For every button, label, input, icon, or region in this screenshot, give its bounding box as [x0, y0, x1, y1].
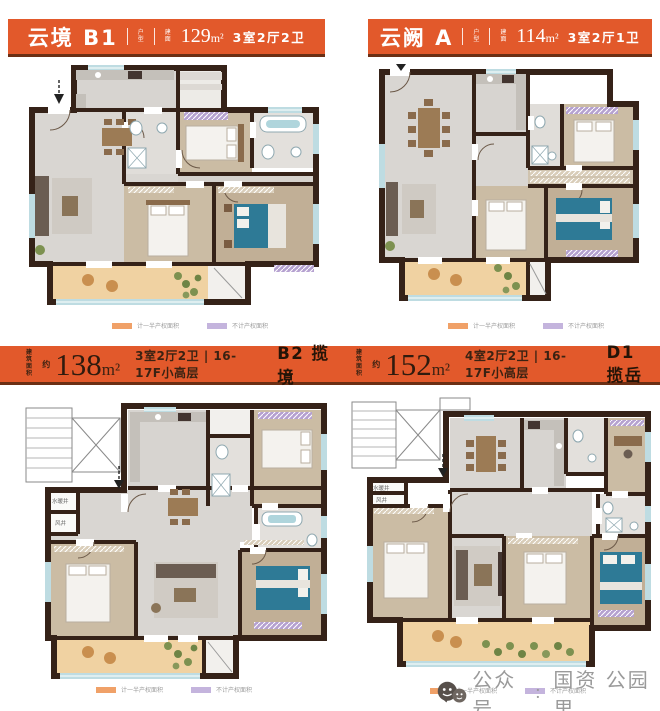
- unit-type-label: 户型: [137, 30, 145, 44]
- unit-header-b1: 云境 B1 户型 建面 129m² 3室2厅2卫: [8, 19, 325, 57]
- legend-label-none: 不计产权面积: [216, 685, 252, 694]
- model-name: B2 揽境: [277, 340, 330, 388]
- area-prefix: 建筑面积: [26, 350, 37, 378]
- floorplan-a: [378, 64, 642, 312]
- floorplan-b2: 水暖井 风井: [18, 394, 332, 684]
- legend-swatch-orange: [96, 687, 116, 693]
- channel-label: 公众号: [472, 664, 529, 711]
- svg-text:水暖井: 水暖井: [52, 497, 69, 505]
- unit-title: 云阙 A: [380, 22, 454, 52]
- floorplan-poster: 云境 B1 户型 建面 129m² 3室2厅2卫 云阙 A 户型 建面 114m…: [0, 0, 660, 711]
- approx-label: 约: [372, 359, 380, 370]
- area-value: 152m²: [385, 349, 450, 380]
- legend-b1: 计一半产权面积 不计产权面积: [112, 321, 268, 330]
- rooms-label: 3室2厅2卫: [233, 27, 306, 46]
- unit-header-a: 云阙 A 户型 建面 114m² 3室2厅1卫: [368, 19, 652, 57]
- unit-band: 建筑面积 约 138m² 3室2厅2卫 | 16-17F小高层 B2 揽境 建筑…: [0, 346, 660, 385]
- footer: 计一半产权面积 不计产权面积 公众号 ： 国资 公园里: [390, 662, 656, 706]
- chat-faces-icon: [436, 678, 467, 708]
- wechat-footer: 公众号 ： 国资 公园里: [436, 664, 656, 711]
- legend-label-half: 计一半产权面积: [121, 685, 163, 694]
- stair-core: [26, 408, 120, 482]
- legend-swatch-orange: [448, 323, 468, 329]
- unit-type-label: 户型: [472, 30, 480, 44]
- legend-swatch-purple: [191, 687, 211, 693]
- channel-separator: ：: [534, 683, 548, 703]
- area-prefix: 建面: [499, 30, 507, 44]
- svg-text:水暖井: 水暖井: [373, 484, 390, 492]
- legend-label-half: 计一半产权面积: [473, 321, 515, 330]
- floorplan-d1: 水暖井 风井: [346, 396, 654, 672]
- area-prefix: 建面: [164, 30, 172, 44]
- area-value: 114m²: [516, 25, 558, 48]
- unit-title: 云境 B1: [28, 22, 118, 52]
- svg-text:风井: 风井: [376, 496, 388, 504]
- legend-swatch-purple: [543, 323, 563, 329]
- rooms-label: 3室2厅1卫: [568, 27, 641, 46]
- divider-line: [154, 28, 155, 45]
- svg-text:风井: 风井: [55, 519, 67, 527]
- legend-a: 计一半产权面积 不计产权面积: [448, 321, 604, 330]
- legend-swatch-orange: [112, 323, 132, 329]
- legend-label-none: 不计产权面积: [232, 321, 268, 330]
- approx-label: 约: [42, 359, 50, 370]
- legend-label-half: 计一半产权面积: [137, 321, 179, 330]
- divider-line: [489, 28, 490, 45]
- area-value: 138m²: [55, 349, 120, 380]
- band-b2: 建筑面积 约 138m² 3室2厅2卫 | 16-17F小高层 B2 揽境: [0, 346, 330, 382]
- floorplan-b1: [28, 64, 332, 314]
- account-name: 国资 公园里: [553, 664, 656, 711]
- band-d1: 建筑面积 约 152m² 4室2厅2卫 | 16-17F小高层 D1 揽岳: [330, 346, 660, 382]
- legend-b2: 计一半产权面积 不计产权面积: [96, 685, 252, 694]
- area-prefix: 建筑面积: [356, 350, 367, 378]
- divider-line: [462, 28, 463, 45]
- legend-swatch-purple: [207, 323, 227, 329]
- specs-label: 3室2厅2卫 | 16-17F小高层: [135, 347, 259, 381]
- specs-label: 4室2厅2卫 | 16-17F小高层: [465, 347, 589, 381]
- divider-line: [127, 28, 128, 45]
- model-name: D1 揽岳: [607, 343, 660, 386]
- legend-label-none: 不计产权面积: [568, 321, 604, 330]
- area-value: 129m²: [181, 25, 224, 48]
